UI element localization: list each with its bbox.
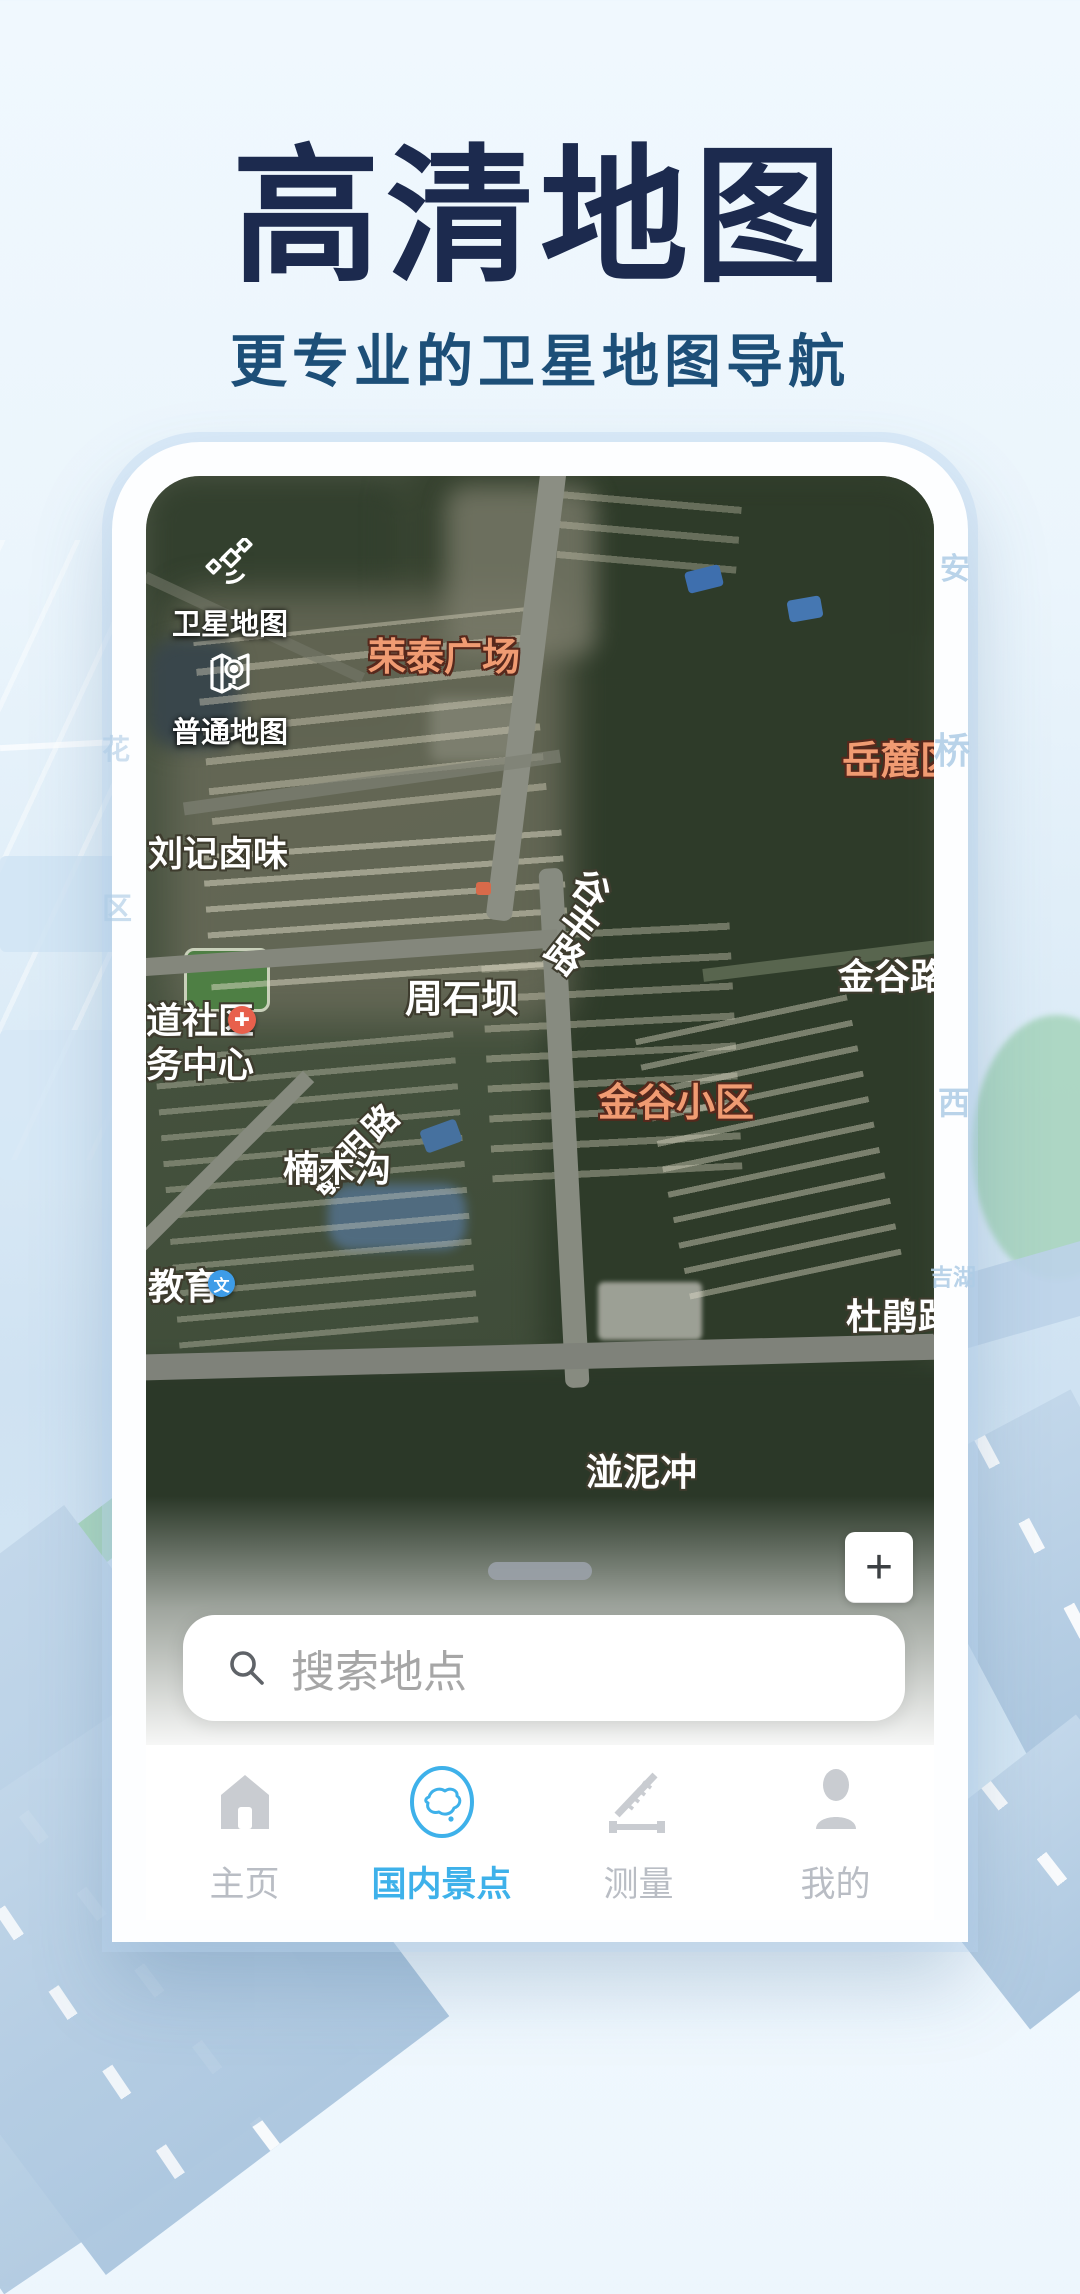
background-map-text: 桥 (934, 722, 970, 774)
drag-handle[interactable] (488, 1562, 592, 1580)
phone-mockup: 卫星地图 普通地图 荣泰广场 岳麓区 刘记卤味 谷 丰 路 (112, 442, 968, 1942)
map-parking-lot (598, 1282, 702, 1340)
map-label-community-line2: 务中心 (146, 1036, 254, 1088)
nav-item-domestic-spots[interactable]: 国内景点 (362, 1763, 522, 1907)
search-icon (225, 1646, 269, 1690)
background-map-text: 安 (940, 544, 970, 588)
profile-icon (804, 1763, 868, 1841)
search-input[interactable]: 搜索地点 (183, 1615, 905, 1721)
map-label-yuelu-district: 岳麓区 (842, 730, 934, 786)
measure-icon (603, 1763, 675, 1841)
background-map-patch (0, 1030, 112, 1180)
satellite-layer-label: 卫星地图 (170, 601, 290, 643)
background-map-text: 区 (102, 884, 132, 928)
normal-map-button[interactable]: 普通地图 (170, 648, 290, 751)
background-bridge-line (0, 739, 118, 751)
map-label-rongtai-plaza: 荣泰广场 (368, 626, 520, 681)
hospital-marker-icon: ✚ (228, 1006, 256, 1034)
background-faded-map-roads (0, 540, 130, 1160)
nav-label-domestic-spots: 国内景点 (362, 1856, 522, 1907)
satellite-icon (204, 538, 256, 590)
china-map-icon (403, 1763, 481, 1841)
map-label-dujuan-road: 杜鹃路 (846, 1288, 934, 1340)
nav-label-measure: 测量 (559, 1856, 719, 1907)
map-label-zhoushiba: 周石坝 (405, 968, 519, 1023)
map-label-liuji: 刘记卤味 (148, 826, 288, 877)
page-title: 高清地图 (0, 96, 1080, 311)
nav-item-measure[interactable]: 测量 (559, 1763, 719, 1907)
nav-item-profile[interactable]: 我的 (756, 1763, 916, 1907)
map-label-nanmugou: 楠木沟 (283, 1140, 391, 1192)
background-hill (972, 1015, 1080, 1280)
background-map-patch (0, 856, 118, 952)
normal-map-icon (205, 648, 255, 698)
nav-label-home: 主页 (165, 1856, 325, 1907)
normal-map-label: 普通地图 (170, 709, 290, 751)
nav-label-profile: 我的 (756, 1856, 916, 1907)
map-label-jingu-road: 金谷路 (838, 948, 934, 1000)
map-red-marker (476, 882, 491, 895)
school-marker-icon: 文 (208, 1270, 235, 1297)
background-map-text: 西 (938, 1078, 970, 1124)
search-placeholder: 搜索地点 (291, 1636, 467, 1700)
satellite-layer-button[interactable]: 卫星地图 (170, 538, 290, 643)
app-screen: 卫星地图 普通地图 荣泰广场 岳麓区 刘记卤味 谷 丰 路 (146, 476, 934, 1920)
page-subtitle: 更专业的卫星地图导航 (0, 316, 1080, 398)
background-map-text: 吉湖 (930, 1258, 976, 1292)
map-label-jingu-estate: 金谷小区 (598, 1072, 754, 1128)
background-map-text: 花 (102, 728, 130, 768)
zoom-in-button[interactable]: + (845, 1532, 913, 1603)
bottom-navbar: 主页 国内景点 (146, 1745, 934, 1920)
map-label-bannichong: 湴泥冲 (586, 1442, 697, 1496)
nav-item-home[interactable]: 主页 (165, 1763, 325, 1907)
home-icon (213, 1763, 277, 1841)
map-buildings (557, 476, 744, 574)
